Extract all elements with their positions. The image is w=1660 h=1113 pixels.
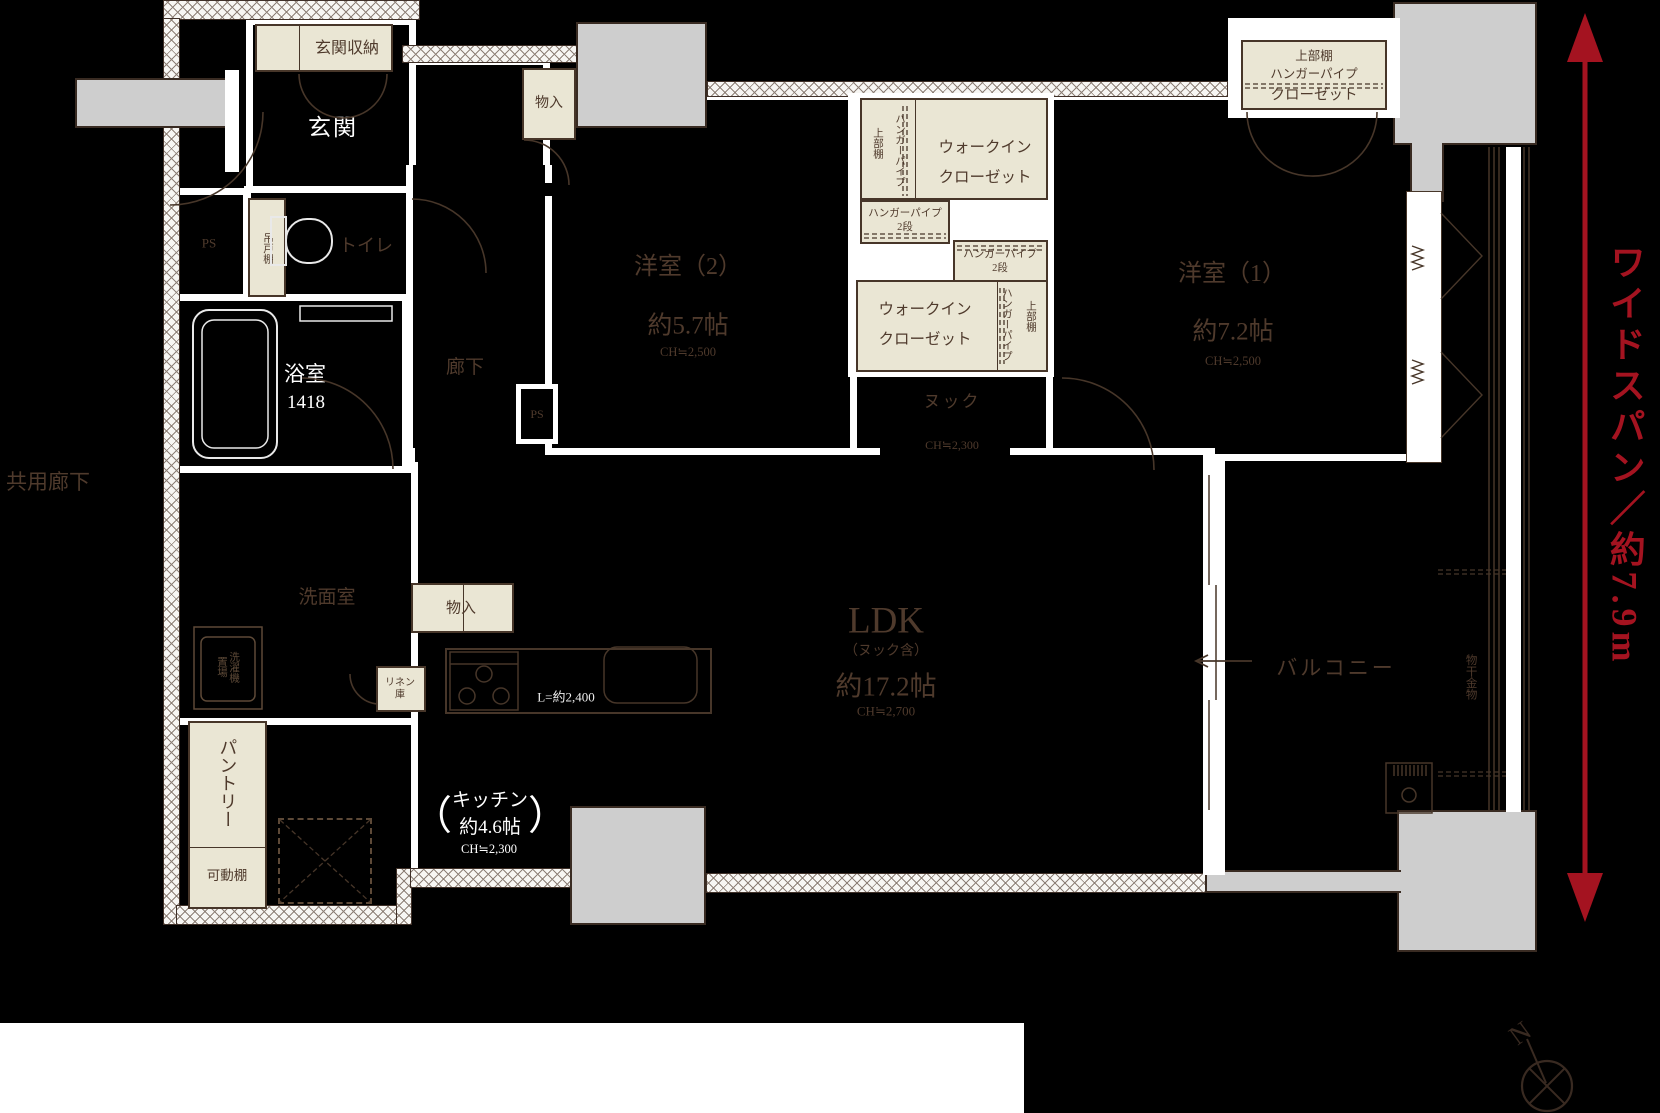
label-ps-right: PS xyxy=(530,408,543,422)
label-wic-bottom-2: クローゼット xyxy=(878,331,971,349)
label-ldk-sub: （ヌック含） xyxy=(844,644,928,660)
label-hp2dan1-1: ハンガーパイプ xyxy=(868,208,941,220)
label-hp2dan2-1: ハンガーパイプ xyxy=(963,249,1036,261)
kitchen-paren-close: ） xyxy=(528,783,568,841)
label-youshitsu1-area: 約7.2帖 xyxy=(1192,319,1273,348)
label-wic-bottom-1: ウォークイン xyxy=(878,301,971,319)
label-wide-span: ワイドスパン／約7.9m xyxy=(1603,244,1644,667)
kitchen-paren-open: （ xyxy=(412,783,452,841)
wic-top-divider xyxy=(915,100,916,198)
label-closet-tr-hanger: ハンガーパイプ xyxy=(1270,67,1357,81)
label-nook: ヌック xyxy=(924,392,981,412)
pillar-bottom-right xyxy=(1397,810,1537,952)
label-monohoshi: 物干金物 xyxy=(1463,654,1476,700)
wall-top-step xyxy=(402,45,578,63)
pillar-top-right xyxy=(1393,2,1537,145)
label-kyoyo-rouka: 共用廊下 xyxy=(6,470,90,494)
label-ldk-area: 約17.2帖 xyxy=(835,671,936,702)
label-wic-top-1: ウォークイン xyxy=(938,139,1031,157)
label-counter-length: L=約2,400 xyxy=(537,691,595,706)
wall-bottom-mid xyxy=(410,868,576,888)
pillar-top-center xyxy=(576,22,707,128)
label-wic-bottom-shelf: 上部棚 xyxy=(1024,300,1036,332)
label-tsuridana: 吊戸棚 xyxy=(261,232,273,264)
label-youshitsu1-ch: CH≒2,500 xyxy=(1205,354,1261,368)
youshitsu1-window-band xyxy=(1406,191,1442,463)
passage-corridor-ldk xyxy=(415,446,545,462)
label-kitchen-name: キッチン xyxy=(452,785,528,812)
wall-top-left xyxy=(163,0,420,20)
label-wic-top-shelf: 上部棚 xyxy=(871,127,883,159)
label-rouka: 廊下 xyxy=(446,357,484,379)
label-monoire-top: 物入 xyxy=(535,96,563,112)
label-linen: リネン 庫 xyxy=(385,678,415,701)
label-balcony: バルコニー xyxy=(1276,656,1396,680)
label-wic-top-hanger: ハンガーパイプ xyxy=(893,113,905,187)
label-ldk-ch: CH≒2,700 xyxy=(857,705,915,720)
compass-north-icon: N xyxy=(1503,1015,1572,1111)
label-genkan-storage: 玄関収納 xyxy=(315,40,379,58)
label-wic-bottom-hanger: ハンガーパイプ xyxy=(1000,287,1012,361)
label-closet-tr: クローゼット xyxy=(1271,88,1358,105)
label-youshitsu2: 洋室（2） xyxy=(634,254,742,282)
label-nook-ch: CH≒2,300 xyxy=(925,439,979,453)
fridge-space xyxy=(278,818,372,904)
label-hp2dan1-2: 2段 xyxy=(897,222,913,234)
wic-bottom-divider xyxy=(997,282,998,370)
label-ldk: LDK xyxy=(848,601,924,644)
label-genkan: 玄関 xyxy=(308,115,358,141)
water-heater-icon xyxy=(1386,763,1432,813)
genkan-storage-divider xyxy=(299,26,300,70)
balcony-bottom-slab xyxy=(1205,870,1401,893)
wide-span-arrow xyxy=(1567,13,1603,922)
label-bath-size: 1418 xyxy=(287,392,325,414)
label-ps-left: PS xyxy=(202,237,216,252)
wall-bottom-right xyxy=(706,873,1206,893)
label-senmenshitsu: 洗面室 xyxy=(298,587,355,609)
label-youshitsu1: 洋室（1） xyxy=(1178,261,1286,289)
floor-plan-canvas: 共用廊下 玄関収納 玄関 物入 吊戸棚 トイレ PS 浴室 1418 廊下 PS… xyxy=(0,0,1660,1113)
label-youshitsu2-area: 約5.7帖 xyxy=(647,313,728,342)
label-pantry: パントリー xyxy=(217,738,238,828)
wall-left xyxy=(163,18,180,925)
label-kadoudana: 可動棚 xyxy=(207,868,248,884)
genkan-door-jamb xyxy=(225,70,239,172)
pillar-top-left xyxy=(75,78,227,128)
passage-genkan-hall xyxy=(495,183,570,196)
compass-n-label: N xyxy=(1503,1015,1536,1051)
label-kitchen-ch: CH≒2,300 xyxy=(461,842,517,856)
label-toilet: トイレ xyxy=(339,236,393,257)
wic-bottom-box xyxy=(856,280,1048,372)
label-wic-top-2: クローゼット xyxy=(938,169,1031,187)
label-closet-tr-shelf: 上部棚 xyxy=(1295,49,1333,63)
label-youshitsu2-ch: CH≒2,500 xyxy=(660,345,716,359)
label-bath: 浴室 xyxy=(284,362,326,386)
label-kitchen-area: 約4.6帖 xyxy=(452,812,528,839)
bottom-white-area xyxy=(0,1023,1024,1113)
pillar-bottom-center xyxy=(570,806,706,925)
label-kitchen-group: （ キッチン 約4.6帖 ） xyxy=(412,783,568,841)
label-monoire-bottom: 物入 xyxy=(446,600,476,617)
label-hp2dan2-2: 2段 xyxy=(992,263,1008,275)
label-washer: 洗濯機 置場 xyxy=(215,651,239,683)
balcony-door-wall xyxy=(1203,455,1225,875)
balcony-rail-strip xyxy=(1506,147,1521,812)
